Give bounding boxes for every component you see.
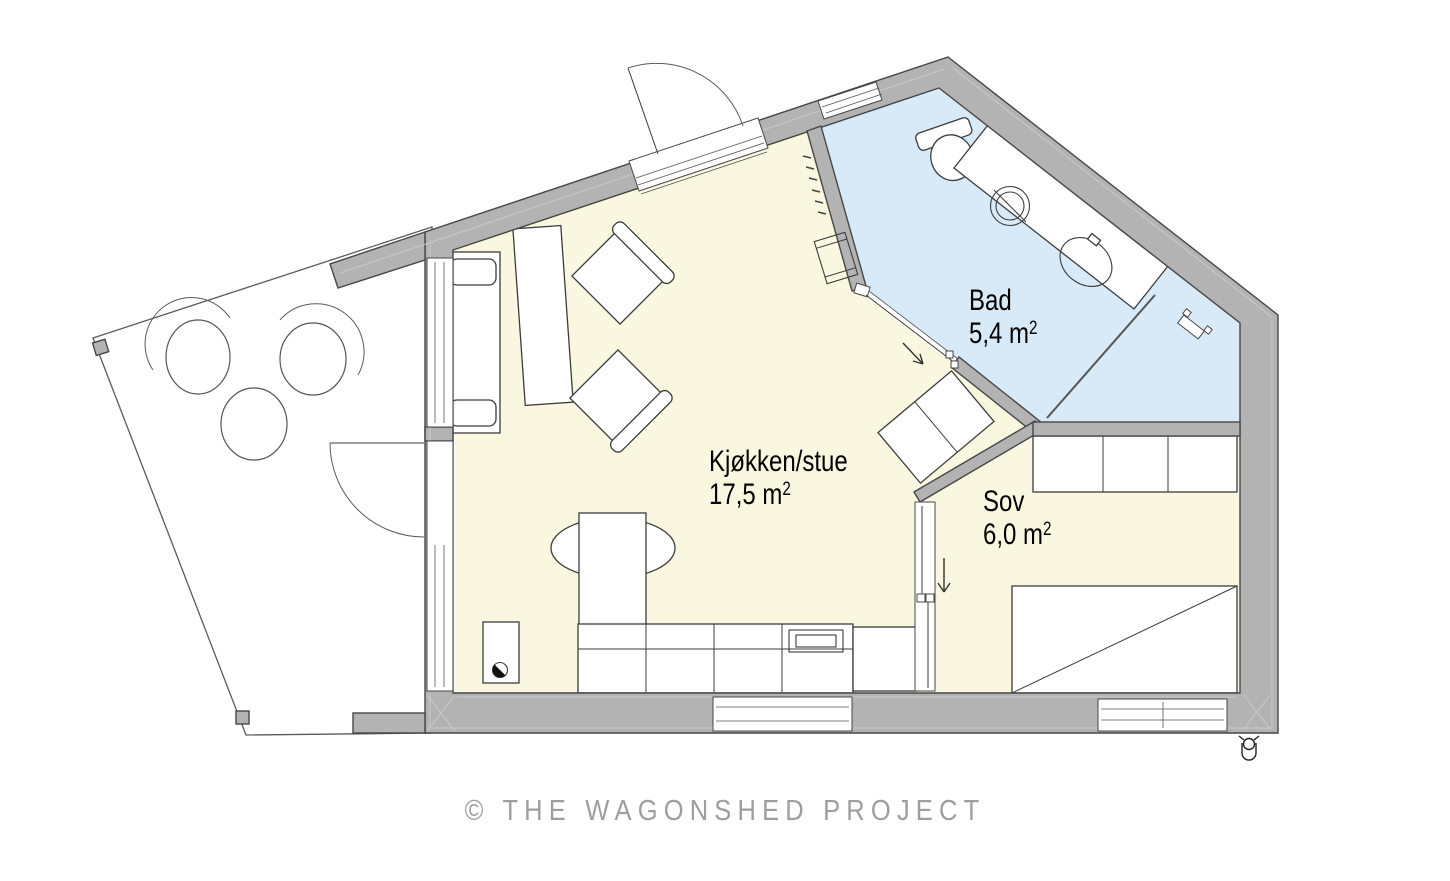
terrace-floor	[93, 227, 432, 735]
room-label-bedroom: Sov 6,0 m2	[983, 485, 1051, 551]
kitchen-counter	[578, 624, 853, 693]
wall-stub-bottom	[353, 713, 425, 733]
left-window-wall	[427, 258, 453, 691]
room-name: Kjøkken/stue	[709, 445, 848, 478]
terrace-post	[236, 711, 249, 724]
water-heater	[483, 622, 519, 683]
floor-plan-page: Kjøkken/stue 17,5 m2 Bad 5,4 m2 Sov 6,0 …	[0, 0, 1450, 881]
room-area: 6,0 m2	[983, 518, 1051, 551]
room-area: 5,4 m2	[969, 317, 1037, 350]
kitchen-window	[713, 697, 852, 731]
floor-plan-drawing	[0, 0, 1450, 881]
room-label-bath: Bad 5,4 m2	[969, 284, 1037, 350]
sofa-pillow	[450, 400, 496, 426]
bed	[1012, 586, 1237, 693]
room-name: Sov	[983, 485, 1051, 518]
terrace-post	[93, 339, 109, 355]
sofa-pillow	[450, 259, 496, 285]
terrace	[93, 227, 432, 735]
door-handle	[926, 594, 934, 602]
door-handle	[951, 361, 958, 368]
room-label-kitchen-living: Kjøkken/stue 17,5 m2	[709, 445, 848, 511]
door-handle	[917, 594, 925, 602]
terrace-table-icon	[221, 388, 287, 460]
room-name: Bad	[969, 284, 1037, 317]
watermark: © THE WAGONSHED PROJECT	[87, 795, 1363, 828]
fridge	[853, 627, 917, 691]
washing-machine-icon	[991, 187, 1030, 226]
bedroom-window	[1098, 699, 1227, 731]
bedroom-sliding-door	[915, 502, 935, 691]
outdoor-tap-icon	[1239, 736, 1259, 760]
door-handle	[946, 351, 953, 358]
room-area: 17,5 m2	[709, 478, 848, 511]
terrace-chair-icon	[166, 320, 230, 394]
wardrobe	[1033, 436, 1237, 492]
terrace-chair-icon	[280, 323, 346, 395]
bath-bedroom-wall	[1033, 422, 1240, 436]
left-wall-pier	[425, 427, 453, 441]
